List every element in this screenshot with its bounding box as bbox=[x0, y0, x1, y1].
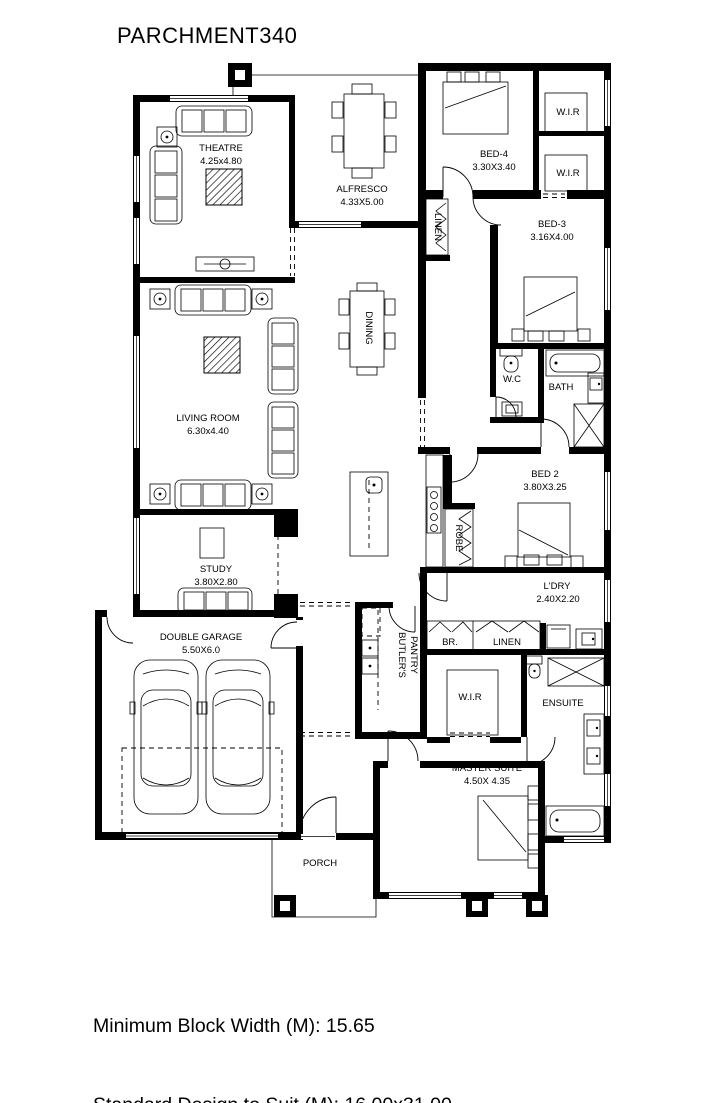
spec-line-standard-design: Standard Design to Suit (M): 16.00x31.00 bbox=[93, 1092, 452, 1103]
bathtub-icon bbox=[546, 350, 604, 376]
room-label-ldry: L'DRY bbox=[544, 581, 572, 592]
room-label-porch: PORCH bbox=[303, 858, 337, 869]
pantry-sink-icon bbox=[362, 640, 378, 674]
room-label-alfresco: ALFRESCO bbox=[336, 184, 387, 195]
speaker-icon bbox=[150, 289, 170, 309]
kitchen-island-icon bbox=[350, 472, 388, 556]
room-dims-ldry: 2.40X2.20 bbox=[536, 594, 579, 605]
room-dims-bed2: 3.80X3.25 bbox=[523, 482, 566, 493]
room-label-dining: DINING bbox=[363, 311, 374, 344]
spec-line-min-block-width: Minimum Block Width (M): 15.65 bbox=[93, 1013, 452, 1039]
kitchen-bench-icon bbox=[426, 455, 443, 567]
room-dims-study: 3.80X2.80 bbox=[194, 577, 237, 588]
laundry-tub-icon bbox=[576, 629, 602, 649]
room-dims-living: 6.30x4.40 bbox=[187, 426, 229, 437]
bed-icon bbox=[505, 503, 583, 568]
car-icon bbox=[130, 660, 202, 814]
speaker-icon bbox=[157, 127, 177, 147]
room-label-ensuite: ENSUITE bbox=[542, 698, 583, 709]
bed-icon bbox=[512, 277, 590, 341]
room-label-living: LIVING ROOM bbox=[176, 413, 239, 424]
bed-icon bbox=[443, 72, 508, 134]
basin-icon bbox=[502, 402, 522, 416]
floor-plan: THEATRE 4.25x4.80 ALFRESCO 4.33X5.00 BED… bbox=[0, 0, 714, 1103]
sofa-icon bbox=[175, 480, 251, 510]
rug-icon bbox=[204, 337, 240, 373]
room-label-butlers-1: BUTLER'S bbox=[396, 632, 407, 678]
laundry-appliance-icon bbox=[547, 625, 570, 648]
room-label-wir-b: W.I.R bbox=[556, 168, 579, 179]
room-label-linen-hall: LINEN bbox=[432, 213, 443, 241]
speaker-icon bbox=[252, 289, 272, 309]
room-label-master: MASTER SUITE bbox=[452, 763, 522, 774]
room-label-wir-a: W.I.R bbox=[556, 107, 579, 118]
outdoor-table-icon bbox=[332, 84, 396, 178]
toilet-icon bbox=[500, 346, 522, 372]
room-label-butlers-2: PANTRY bbox=[408, 636, 419, 674]
room-label-linen-laundry: LINEN bbox=[493, 637, 521, 648]
room-label-wc: W.C bbox=[503, 374, 521, 385]
room-label-theatre: THEATRE bbox=[199, 143, 243, 154]
room-label-robe: ROBE bbox=[453, 525, 464, 552]
cooktop-icon bbox=[427, 487, 441, 533]
room-dims-alfresco: 4.33X5.00 bbox=[340, 197, 383, 208]
rug-icon bbox=[206, 169, 242, 205]
car-icon bbox=[202, 660, 274, 814]
room-dims-theatre: 4.25x4.80 bbox=[200, 156, 242, 167]
room-label-garage: DOUBLE GARAGE bbox=[160, 632, 242, 643]
sofa-icon bbox=[150, 146, 182, 224]
spec-list: Minimum Block Width (M): 15.65 Standard … bbox=[93, 960, 452, 1103]
sofa-icon bbox=[178, 588, 252, 614]
toilet-icon bbox=[526, 656, 542, 678]
vanity-icon bbox=[584, 714, 604, 774]
speaker-icon bbox=[252, 484, 272, 504]
room-label-wir-master: W.I.R bbox=[458, 692, 481, 703]
room-dims-master: 4.50X 4.35 bbox=[464, 776, 510, 787]
floor-plan-page: PARCHMENT340 bbox=[0, 0, 714, 1103]
room-label-study: STUDY bbox=[200, 564, 233, 575]
vanity-icon bbox=[588, 373, 604, 403]
speaker-icon bbox=[150, 484, 170, 504]
room-label-bath: BATH bbox=[549, 382, 574, 393]
room-label-br: BR. bbox=[442, 637, 458, 648]
sofa-icon bbox=[175, 285, 251, 315]
room-dims-bed4: 3.30X3.40 bbox=[472, 162, 515, 173]
sofa-icon bbox=[176, 106, 252, 136]
tv-unit-icon bbox=[196, 257, 254, 271]
sofa-icon bbox=[268, 402, 298, 478]
room-label-bed3: BED-3 bbox=[538, 219, 566, 230]
doors bbox=[107, 167, 569, 833]
bed-icon bbox=[478, 786, 540, 868]
shower-icon bbox=[548, 658, 604, 686]
room-dims-garage: 5.50X6.0 bbox=[182, 645, 220, 656]
bathtub-icon bbox=[546, 806, 604, 836]
sofa-icon bbox=[268, 318, 298, 394]
room-label-bed4: BED-4 bbox=[480, 149, 508, 160]
desk-icon bbox=[200, 528, 224, 558]
shower-icon bbox=[574, 404, 604, 447]
room-dims-bed3: 3.16X4.00 bbox=[530, 232, 573, 243]
room-label-bed2: BED 2 bbox=[531, 469, 558, 480]
